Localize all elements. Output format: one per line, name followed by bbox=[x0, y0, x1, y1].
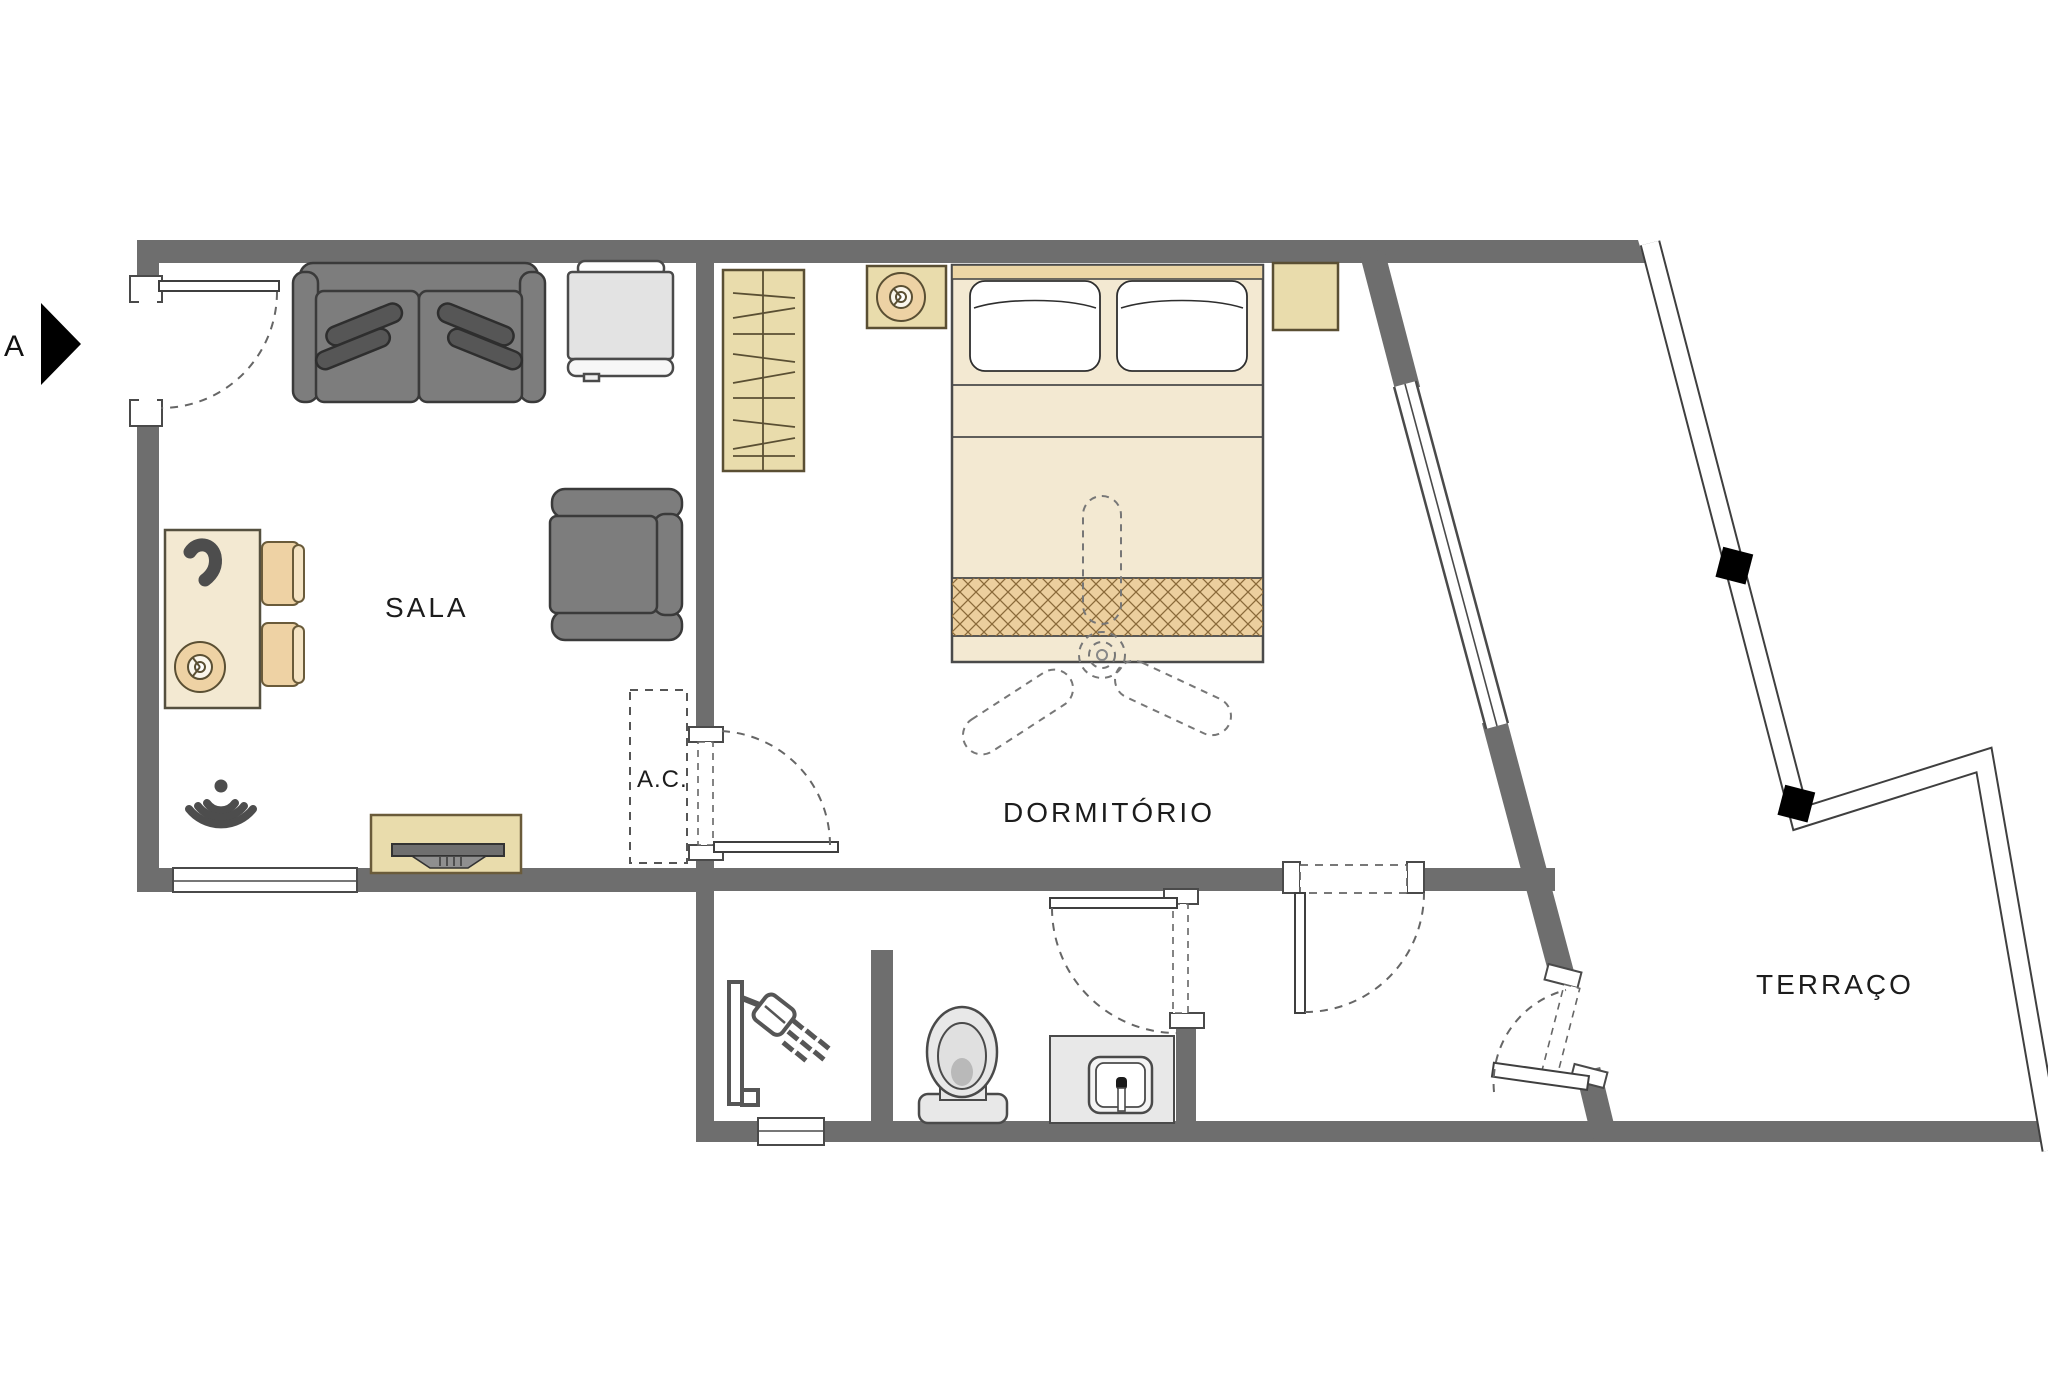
sala-label: SALA bbox=[385, 592, 469, 623]
sala-dormitorio-door bbox=[689, 727, 838, 860]
dormitorio-hall-door bbox=[1283, 862, 1424, 1013]
terrace-door bbox=[1492, 964, 1608, 1092]
lamp-icon bbox=[877, 273, 925, 321]
shower-spray bbox=[785, 1022, 827, 1059]
sala-south-window bbox=[173, 868, 357, 892]
ac-label: A.C. bbox=[637, 766, 688, 793]
wall-bottom bbox=[696, 1121, 2048, 1142]
wall-sala-dorm-upper bbox=[696, 258, 714, 737]
wall-shower-divider bbox=[871, 950, 893, 1121]
terraco-label: TERRAÇO bbox=[1756, 969, 1914, 1000]
nightstand-with-lamp bbox=[867, 266, 946, 328]
sala-dorm-door-swing-arc bbox=[716, 731, 830, 845]
section-marker-label: A bbox=[4, 330, 24, 363]
bed-pillow bbox=[1117, 281, 1247, 371]
wifi-icon bbox=[189, 780, 253, 825]
bed-blanket-hatched bbox=[952, 578, 1263, 636]
wall-dorm-south-left bbox=[714, 868, 1287, 891]
ac-unit-outline: A.C. bbox=[630, 690, 688, 863]
double-bed bbox=[952, 265, 1263, 662]
bathroom-door-swing-arc bbox=[1052, 908, 1177, 1033]
wall-left-lower bbox=[137, 424, 159, 892]
wall-bath-hall-divider bbox=[1176, 1028, 1196, 1123]
sala-dorm-door-leaf bbox=[714, 842, 838, 852]
hall-door-leaf bbox=[1295, 893, 1305, 1013]
sofa bbox=[293, 263, 545, 402]
section-arrow-icon bbox=[41, 303, 81, 385]
floor-plan-canvas: A A.C. bbox=[0, 0, 2048, 1375]
faucet-icon bbox=[1116, 1077, 1127, 1111]
entrance-door-swing-arc bbox=[161, 292, 277, 408]
wall-sala-dorm-lower bbox=[696, 852, 714, 1141]
bathroom-south-window bbox=[758, 1118, 824, 1145]
bed-pillow bbox=[970, 281, 1100, 371]
shower-icon bbox=[729, 982, 827, 1105]
section-marker: A bbox=[4, 303, 81, 385]
desk bbox=[165, 530, 304, 708]
desk-chair bbox=[262, 542, 304, 605]
entrance-door-leaf bbox=[159, 281, 279, 291]
hall-door-swing-arc bbox=[1305, 893, 1424, 1012]
wall-left-upper bbox=[137, 240, 159, 280]
tv-sideboard bbox=[371, 815, 521, 873]
dormitorio-label: DORMITÓRIO bbox=[1003, 797, 1215, 828]
appliance-cabinet bbox=[568, 261, 673, 381]
bed-headboard bbox=[952, 265, 1263, 279]
entrance-door bbox=[130, 276, 279, 426]
wall-terrace-boundary bbox=[1650, 243, 2048, 1150]
wall-top bbox=[137, 240, 1645, 263]
wall-sala-south-corner bbox=[137, 868, 175, 892]
bedroom-diagonal-window bbox=[1405, 384, 1497, 726]
wardrobe bbox=[723, 270, 804, 471]
desk-chair bbox=[262, 623, 304, 686]
desk-lamp-icon bbox=[175, 642, 225, 692]
toilet-icon bbox=[919, 1007, 1007, 1123]
bathroom-door-leaf bbox=[1050, 898, 1177, 908]
nightstand bbox=[1273, 263, 1338, 330]
floor-plan-svg: A A.C. bbox=[0, 0, 2048, 1375]
armchair bbox=[550, 489, 682, 640]
washbasin-counter bbox=[1050, 1036, 1174, 1123]
tv-icon bbox=[392, 844, 504, 856]
bathroom-door bbox=[1050, 889, 1204, 1033]
